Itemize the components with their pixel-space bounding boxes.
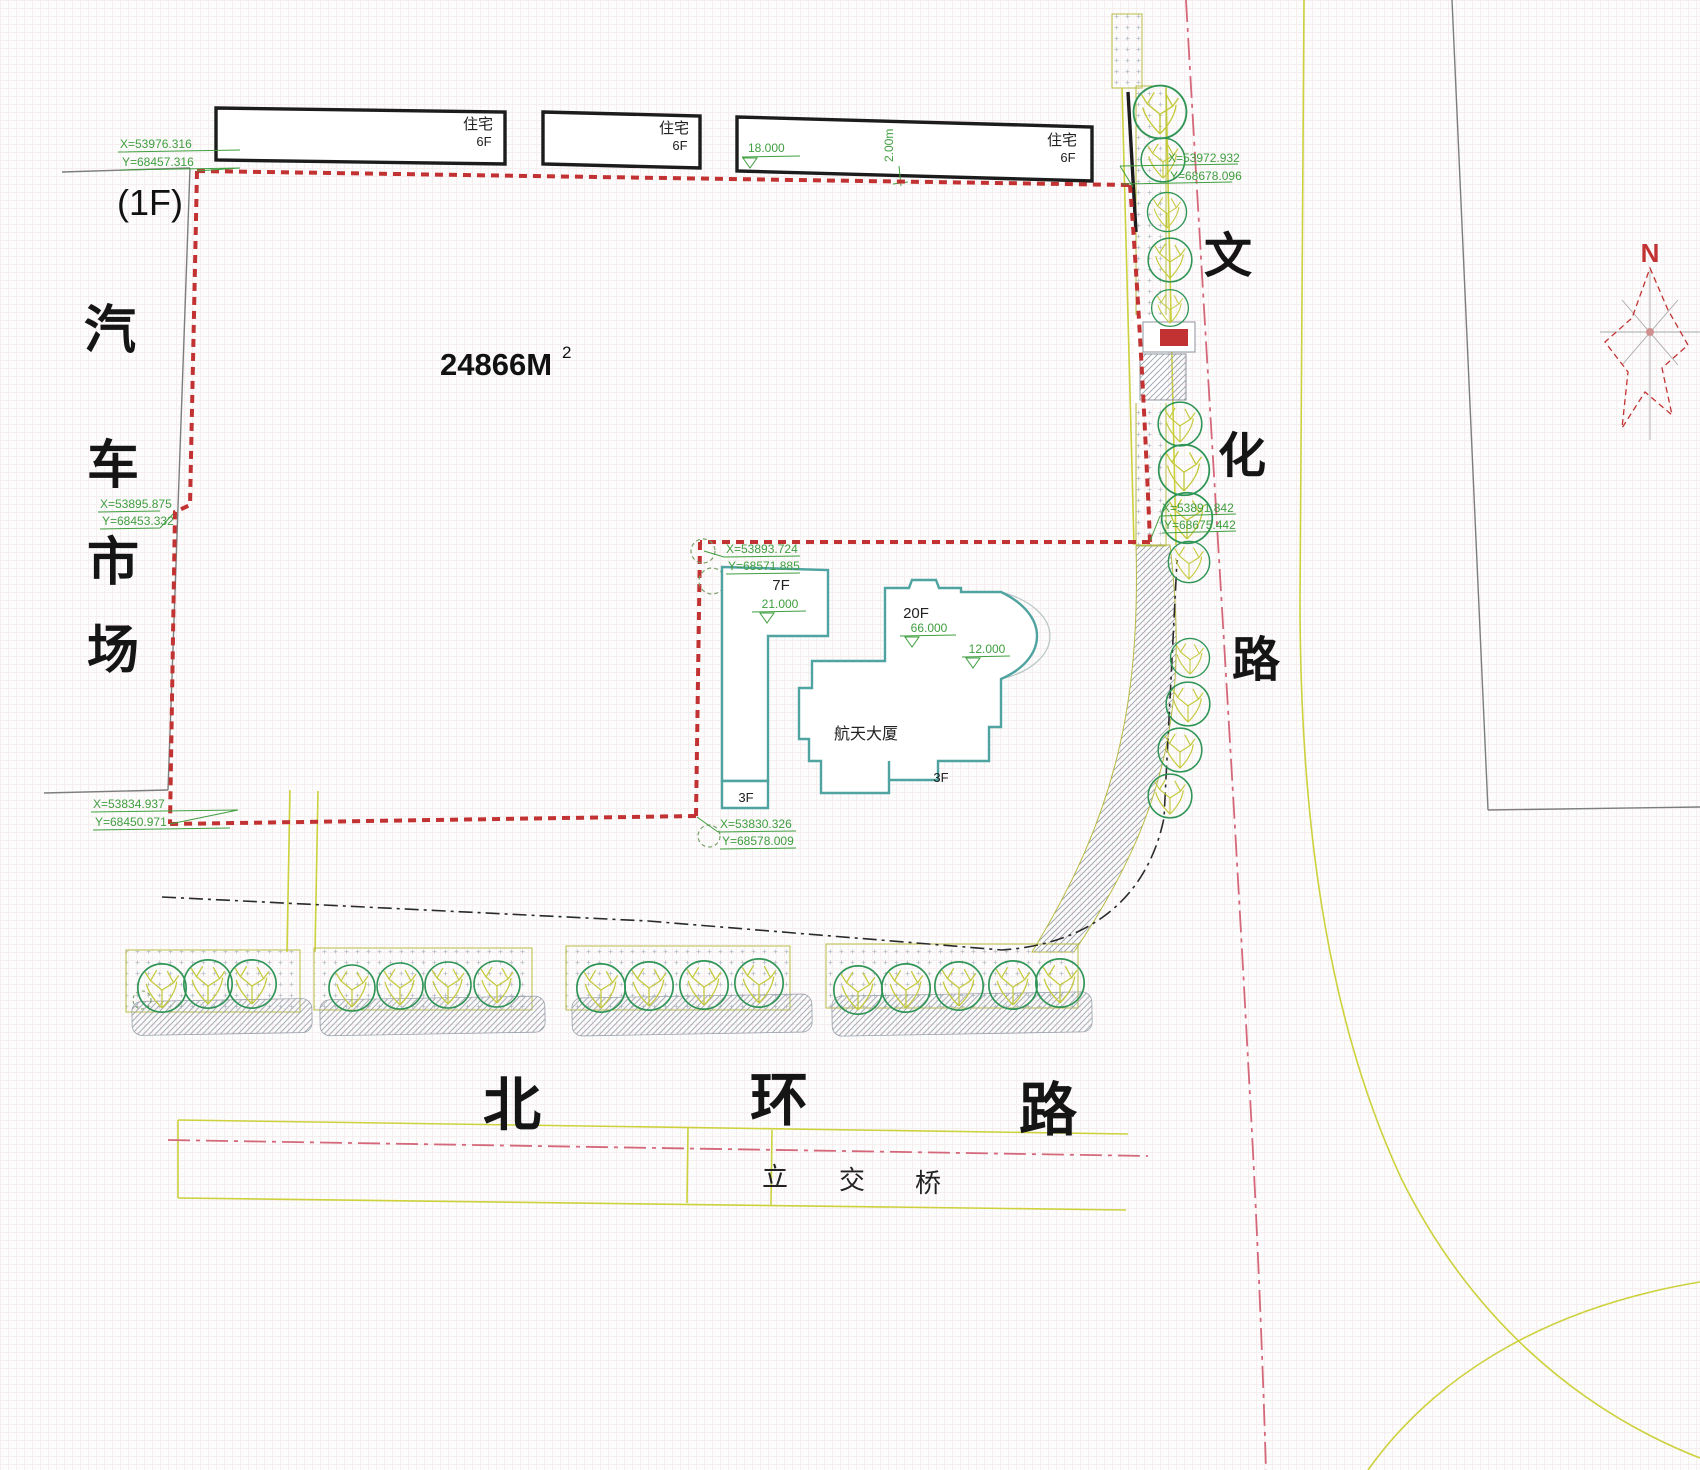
site-boundary-south bbox=[170, 816, 696, 824]
existing-tree-icon bbox=[698, 825, 720, 847]
auto-market-char-1: 汽 bbox=[84, 302, 136, 360]
coordinate-x: X=53834.937 bbox=[93, 797, 165, 811]
north-arrow-label: N bbox=[1641, 238, 1660, 268]
auto-market-parcel-bottom-line bbox=[44, 790, 168, 793]
residential-building-1 bbox=[216, 108, 505, 164]
residential-2-label: 住宅 bbox=[659, 120, 689, 137]
coordinate-x: X=53895.875 bbox=[100, 497, 172, 511]
coordinate-x: X=53972.932 bbox=[1168, 151, 1240, 165]
overpass-char-1: 立 bbox=[762, 1162, 788, 1192]
wing-elevation-text: 21.000 bbox=[762, 597, 799, 611]
residential-1-label: 住宅 bbox=[463, 116, 493, 133]
left-parcel-floor-note: (1F) bbox=[117, 182, 183, 223]
wenhua-road-centerline bbox=[1186, 0, 1266, 1470]
bed-divider-line-a bbox=[287, 790, 290, 952]
overpass-char-3: 桥 bbox=[915, 1168, 941, 1198]
wenhua-road-char-1: 文 bbox=[1204, 230, 1252, 283]
compass-rose-icon bbox=[1605, 268, 1688, 428]
beihuan-road-centerline bbox=[168, 1140, 1148, 1156]
sidewalk-strip-4 bbox=[832, 992, 1093, 1037]
southeast-corner-curb bbox=[1368, 1282, 1700, 1470]
wenhua-road-char-3: 路 bbox=[1232, 634, 1281, 687]
site-plan-canvas: 住宅 6F 住宅 6F 住宅 6F 18.000 2.00m 24866M 2 bbox=[0, 0, 1700, 1470]
site-boundary-west bbox=[170, 171, 197, 824]
residential-2-floors: 6F bbox=[672, 138, 687, 153]
tower-elevation-text: 66.000 bbox=[911, 621, 948, 635]
road-centerlines bbox=[168, 0, 1266, 1470]
entrance-hatch-block bbox=[1140, 354, 1186, 400]
site-boundary bbox=[170, 171, 1150, 824]
entrance-gate-marker bbox=[1160, 329, 1188, 346]
auto-market-char-4: 场 bbox=[87, 622, 139, 680]
coordinate-y: Y=68578.009 bbox=[722, 834, 794, 848]
beihuan-road-char-3: 路 bbox=[1019, 1078, 1078, 1143]
east-block-edge-line bbox=[1452, 0, 1488, 810]
annex-3f-left-label: 3F bbox=[738, 790, 753, 805]
site-area-value: 24866M bbox=[440, 347, 552, 382]
annex-3f-right-label: 3F bbox=[933, 770, 948, 785]
corner-sidewalk-swath bbox=[1032, 545, 1176, 952]
overpass-outline bbox=[178, 1120, 1128, 1210]
overpass-bottom-line bbox=[178, 1198, 1126, 1210]
podium-elevation-text: 12.000 bbox=[969, 642, 1006, 656]
auto-market-char-2: 车 bbox=[87, 437, 139, 495]
road-edge-lines bbox=[287, 0, 1700, 1470]
tree-icon bbox=[1148, 774, 1192, 818]
residential-elevation-text: 18.000 bbox=[748, 141, 785, 155]
overpass-top-line bbox=[178, 1120, 1128, 1134]
residential-building-3 bbox=[737, 117, 1092, 181]
wing-7f-label: 7F bbox=[772, 577, 790, 594]
coordinate-x: X=53893.724 bbox=[726, 542, 798, 556]
east-block-bottom-line bbox=[1488, 807, 1700, 810]
coordinate-callout-2: X=53895.875 Y=68453.332 bbox=[98, 497, 174, 529]
bed-divider-line-b bbox=[315, 791, 318, 952]
residential-3-floors: 6F bbox=[1060, 150, 1075, 165]
compass-center bbox=[1646, 328, 1654, 336]
site-plan-sheet: 住宅 6F 住宅 6F 住宅 6F 18.000 2.00m 24866M 2 bbox=[0, 0, 1700, 1470]
coordinate-x: X=53830.326 bbox=[720, 817, 792, 831]
coordinate-callout-5: X=53830.326 Y=68578.009 bbox=[697, 817, 796, 849]
tower-name-label: 航天大厦 bbox=[834, 725, 898, 743]
coordinate-y: Y=68450.971 bbox=[95, 815, 167, 829]
east-road-edge-curve bbox=[1300, 0, 1700, 1458]
site-area-label: 24866M 2 bbox=[440, 343, 571, 382]
tree-icon bbox=[1168, 541, 1209, 582]
existing-tree-icon bbox=[691, 539, 715, 563]
overpass-pier-line-a bbox=[687, 1128, 688, 1203]
coordinate-y: Y=68678.096 bbox=[1170, 169, 1242, 183]
overpass-char-2: 交 bbox=[839, 1165, 865, 1195]
beihuan-road-char-1: 北 bbox=[483, 1073, 541, 1138]
north-paving-patch bbox=[1112, 14, 1142, 88]
text-labels: (1F) 汽 车 市 场 文 化 路 北 环 路 立 交 桥 bbox=[84, 182, 1281, 1198]
north-compass: N bbox=[1600, 238, 1700, 440]
beihuan-road-char-2: 环 bbox=[750, 1068, 808, 1133]
northeast-corner-mark bbox=[1128, 92, 1136, 232]
coordinate-y: Y=68453.332 bbox=[102, 514, 174, 528]
coordinate-y: Y=68675.442 bbox=[1164, 518, 1236, 532]
residential-1-floors: 6F bbox=[476, 134, 491, 149]
coordinate-y: Y=68457.316 bbox=[122, 155, 194, 169]
coordinate-callout-4: X=53893.724 Y=68571.885 bbox=[704, 542, 800, 574]
site-area-exponent: 2 bbox=[562, 343, 571, 362]
setback-dimension-text: 2.00m bbox=[882, 129, 896, 162]
auto-market-char-3: 市 bbox=[87, 534, 139, 592]
coordinate-callouts: X=53976.316 Y=68457.316 X=53895.875 Y=68… bbox=[91, 137, 1242, 849]
tower-20f-label: 20F bbox=[903, 605, 929, 622]
wenhua-road-char-2: 化 bbox=[1218, 430, 1266, 483]
coordinate-x: X=53891.842 bbox=[1162, 501, 1234, 515]
coordinate-y: Y=68571.885 bbox=[728, 559, 800, 573]
residential-buildings bbox=[216, 108, 1092, 181]
coordinate-x: X=53976.316 bbox=[120, 137, 192, 151]
residential-3-label: 住宅 bbox=[1047, 132, 1077, 149]
